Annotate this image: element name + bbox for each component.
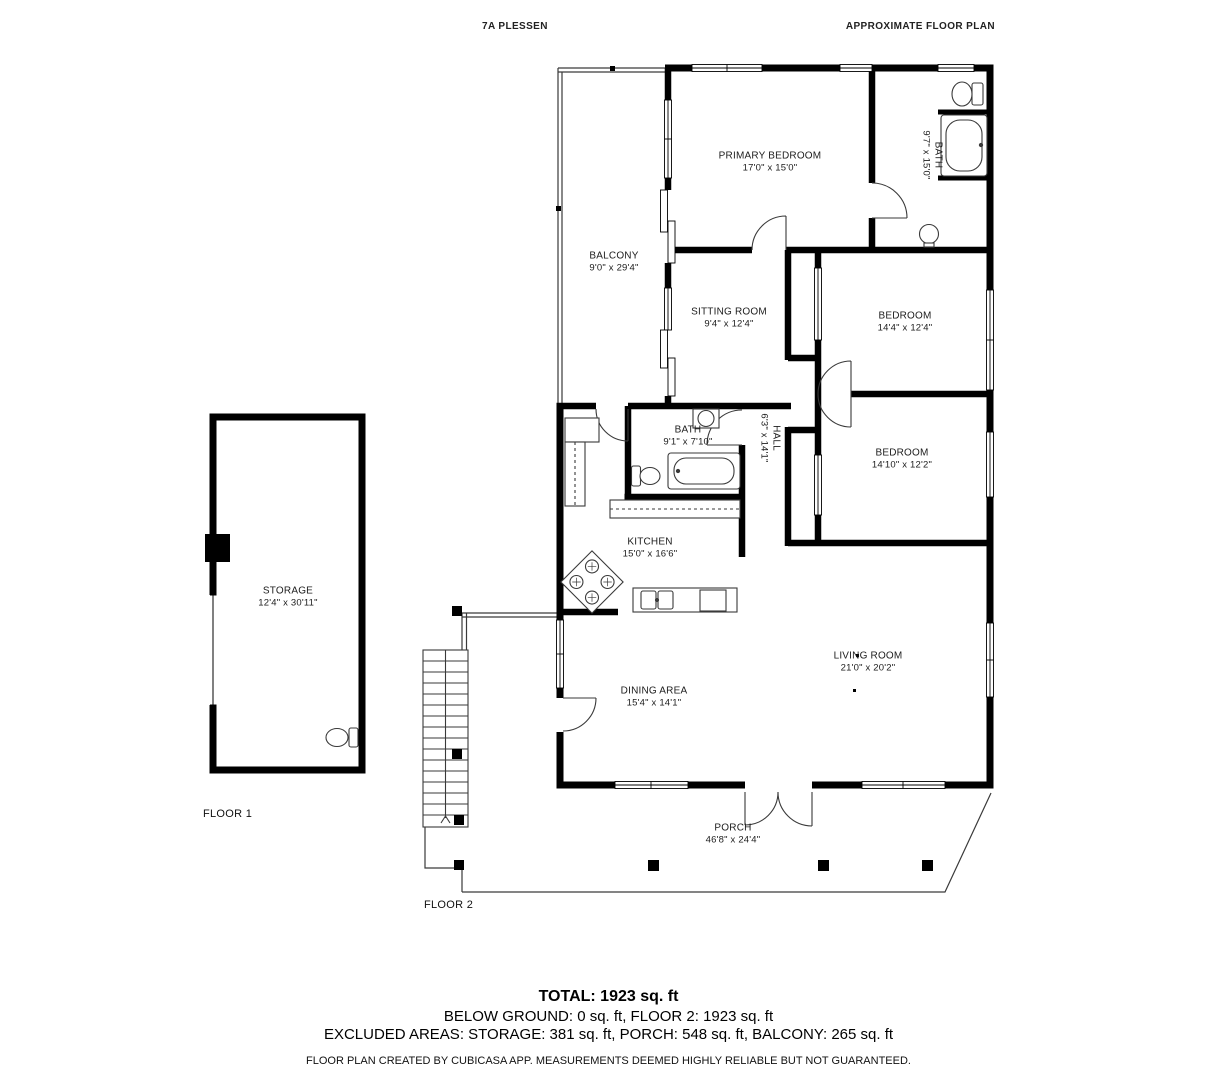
room-dims: 9'7" x 15'0" [919, 130, 931, 179]
room-dims: 21'0" x 20'2" [834, 662, 903, 674]
room-name: DINING AREA [621, 684, 688, 697]
room-dims: 15'4" x 14'1" [621, 697, 688, 709]
fridge-icon [565, 418, 599, 442]
window-dining-west [557, 620, 564, 688]
deck-edge-left [425, 827, 462, 892]
room-label-primary-bedroom: PRIMARY BEDROOM 17'0" x 15'0" [719, 149, 822, 174]
room-dims: 9'0" x 29'4" [589, 262, 638, 274]
window-primary-top [692, 65, 762, 72]
window-dining-south [615, 782, 688, 789]
room-name: KITCHEN [623, 535, 678, 548]
sliding-door-primary [661, 190, 676, 263]
toilet-icon-storage [326, 728, 358, 747]
room-label-bath-top: BATH 9'7" x 15'0" [919, 130, 944, 179]
room-name: LIVING ROOM [834, 649, 903, 662]
floor-plan-drawing [0, 0, 1217, 1080]
room-label-dining-area: DINING AREA 15'4" x 14'1" [621, 684, 688, 709]
sink-icon-bath-top [920, 225, 939, 248]
room-name: HALL [770, 413, 783, 462]
window-living-south [862, 782, 945, 789]
room-dims: 15'0" x 16'6" [623, 548, 678, 560]
window-primary-top-2 [840, 65, 872, 72]
door-kitchen-balcony [596, 409, 628, 441]
room-dims: 46'8" x 24'4" [706, 834, 761, 846]
room-name: BATH [663, 423, 712, 436]
kitchen-counter-west [565, 442, 585, 506]
bathtub-icon-bath-top [941, 115, 987, 176]
room-label-kitchen: KITCHEN 15'0" x 16'6" [623, 535, 678, 560]
room-name: PRIMARY BEDROOM [719, 149, 822, 162]
toilet-icon-bath-mid [632, 466, 661, 486]
sliding-door-sitting [661, 330, 676, 396]
toilet-icon-bath-top [952, 82, 983, 106]
room-label-bath-mid: BATH 9'1" x 7'10" [663, 423, 712, 448]
room-label-balcony: BALCONY 9'0" x 29'4" [589, 249, 638, 274]
room-label-storage: STORAGE 12'4" x 30'11" [258, 584, 317, 609]
disclaimer-text: FLOOR PLAN CREATED BY CUBICASA APP. MEAS… [0, 1055, 1217, 1067]
total-area: TOTAL: 1923 sq. ft [0, 988, 1217, 1006]
room-dims: 14'4" x 12'4" [878, 322, 933, 334]
window-bedroom-upper [987, 290, 994, 390]
door-bedroom-upper [818, 361, 851, 394]
room-dims: 9'1" x 7'10" [663, 436, 712, 448]
floor-plan-page: 7A PLESSEN APPROXIMATE FLOOR PLAN [0, 0, 1217, 1080]
door-dining-exterior [563, 698, 596, 731]
stairs [423, 650, 468, 827]
room-name: STORAGE [258, 584, 317, 597]
floor-2-label: FLOOR 2 [424, 899, 473, 911]
room-label-sitting-room: SITTING ROOM 9'4" x 12'4" [691, 305, 767, 330]
area-summary: TOTAL: 1923 sq. ft BELOW GROUND: 0 sq. f… [0, 988, 1217, 1067]
balcony-rail-left [558, 68, 562, 406]
door-bath-top [872, 183, 907, 218]
porch-deck [425, 613, 991, 892]
floor-areas-line: BELOW GROUND: 0 sq. ft, FLOOR 2: 1923 sq… [0, 1008, 1217, 1025]
excluded-areas-line: EXCLUDED AREAS: STORAGE: 381 sq. ft, POR… [0, 1026, 1217, 1043]
deck-walkway-rail-west [462, 613, 467, 650]
porch-posts [452, 606, 933, 871]
window-balcony-wall-1 [665, 100, 672, 178]
room-label-porch: PORCH 46'8" x 24'4" [706, 821, 761, 846]
room-dims: 17'0" x 15'0" [719, 162, 822, 174]
bathtub-icon-bath-mid [668, 453, 740, 489]
room-dims: 6'3" x 14'1" [757, 413, 769, 462]
room-dims: 9'4" x 12'4" [691, 318, 767, 330]
window-bedroom-lower [987, 432, 994, 497]
kitchen-counter-south [633, 588, 737, 612]
room-name: BALCONY [589, 249, 638, 262]
closet-slider-bedroom-upper [815, 268, 822, 340]
door-bedroom-lower [818, 394, 851, 427]
storage-pillar [205, 534, 230, 562]
balcony-railing [558, 68, 668, 406]
room-dims: 14'10" x 12'2" [872, 459, 932, 471]
window-balcony-wall-2 [665, 288, 672, 330]
room-label-bedroom-upper: BEDROOM 14'4" x 12'4" [878, 309, 933, 334]
room-name: BATH [932, 130, 945, 179]
balcony-rail-posts [556, 66, 615, 211]
stove-icon [561, 551, 623, 613]
room-label-living-room: LIVING ROOM 21'0" x 20'2" [834, 649, 903, 674]
window-living-east [987, 623, 994, 697]
door-primary-bedroom [752, 216, 786, 250]
window-bath-top [938, 65, 974, 72]
room-name: PORCH [706, 821, 761, 834]
kitchen-counter-north [610, 500, 740, 518]
room-label-hall: HALL 6'3" x 14'1" [757, 413, 782, 462]
room-name: SITTING ROOM [691, 305, 767, 318]
floor-1-label: FLOOR 1 [203, 808, 252, 820]
deck-walkway-rail-top [462, 613, 558, 617]
room-label-bedroom-lower: BEDROOM 14'10" x 12'2" [872, 446, 932, 471]
room-name: BEDROOM [878, 309, 933, 322]
room-name: BEDROOM [872, 446, 932, 459]
fixtures [326, 82, 987, 747]
closet-slider-bedroom-lower [815, 455, 822, 515]
room-dims: 12'4" x 30'11" [258, 597, 317, 609]
